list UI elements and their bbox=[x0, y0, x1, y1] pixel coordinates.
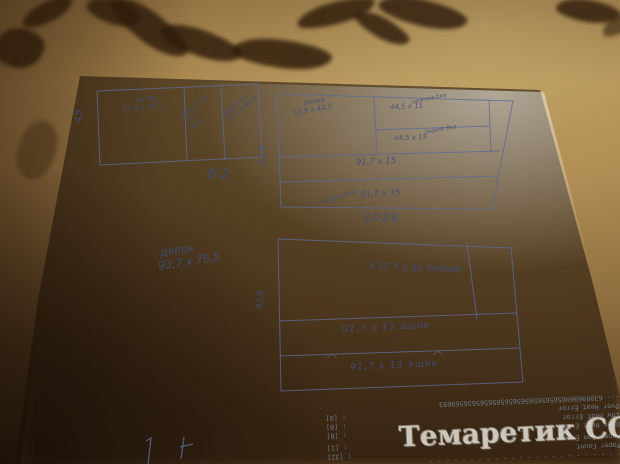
printout-value: : [0] bbox=[326, 430, 347, 440]
width-b-value: 1028 bbox=[364, 211, 400, 224]
height-b-value: 62,6 bbox=[257, 145, 268, 164]
photo-scene: полке 53,5 х 44,5 задняя бка 14,4 48,5 д… bbox=[0, 0, 620, 464]
height-c-value: 62,6 bbox=[255, 290, 266, 309]
dim-height-b: 62,6 bbox=[258, 145, 268, 164]
row1-b-dims: 91,7 х 15 bbox=[356, 156, 397, 168]
cell1-dims: 44,5 х 15 bbox=[390, 101, 447, 112]
printout-value: : [0] bbox=[326, 421, 347, 431]
note-cell1-b: нижняя бка 44,5 х 15 bbox=[390, 96, 447, 110]
dim-height-c: 62,6 bbox=[256, 290, 266, 309]
cell2-dims: 44,5 х 15 bbox=[394, 132, 457, 143]
printout-value: : [1] bbox=[327, 442, 348, 452]
note-cell2-b: задняя бка 44,5 х 15 bbox=[394, 127, 457, 141]
printout-value: : [32] bbox=[327, 451, 352, 461]
row2-b-dims: 91,7 х 15 bbox=[360, 188, 401, 200]
printout-value: : [0] bbox=[325, 412, 346, 422]
dim-width-a: 62 bbox=[207, 166, 234, 183]
dim-width-b: 1028 bbox=[364, 212, 400, 225]
height-a-value: 45 bbox=[73, 108, 85, 124]
dim-height-a: 45 bbox=[73, 108, 86, 124]
width-a-value: 62 bbox=[207, 165, 234, 183]
